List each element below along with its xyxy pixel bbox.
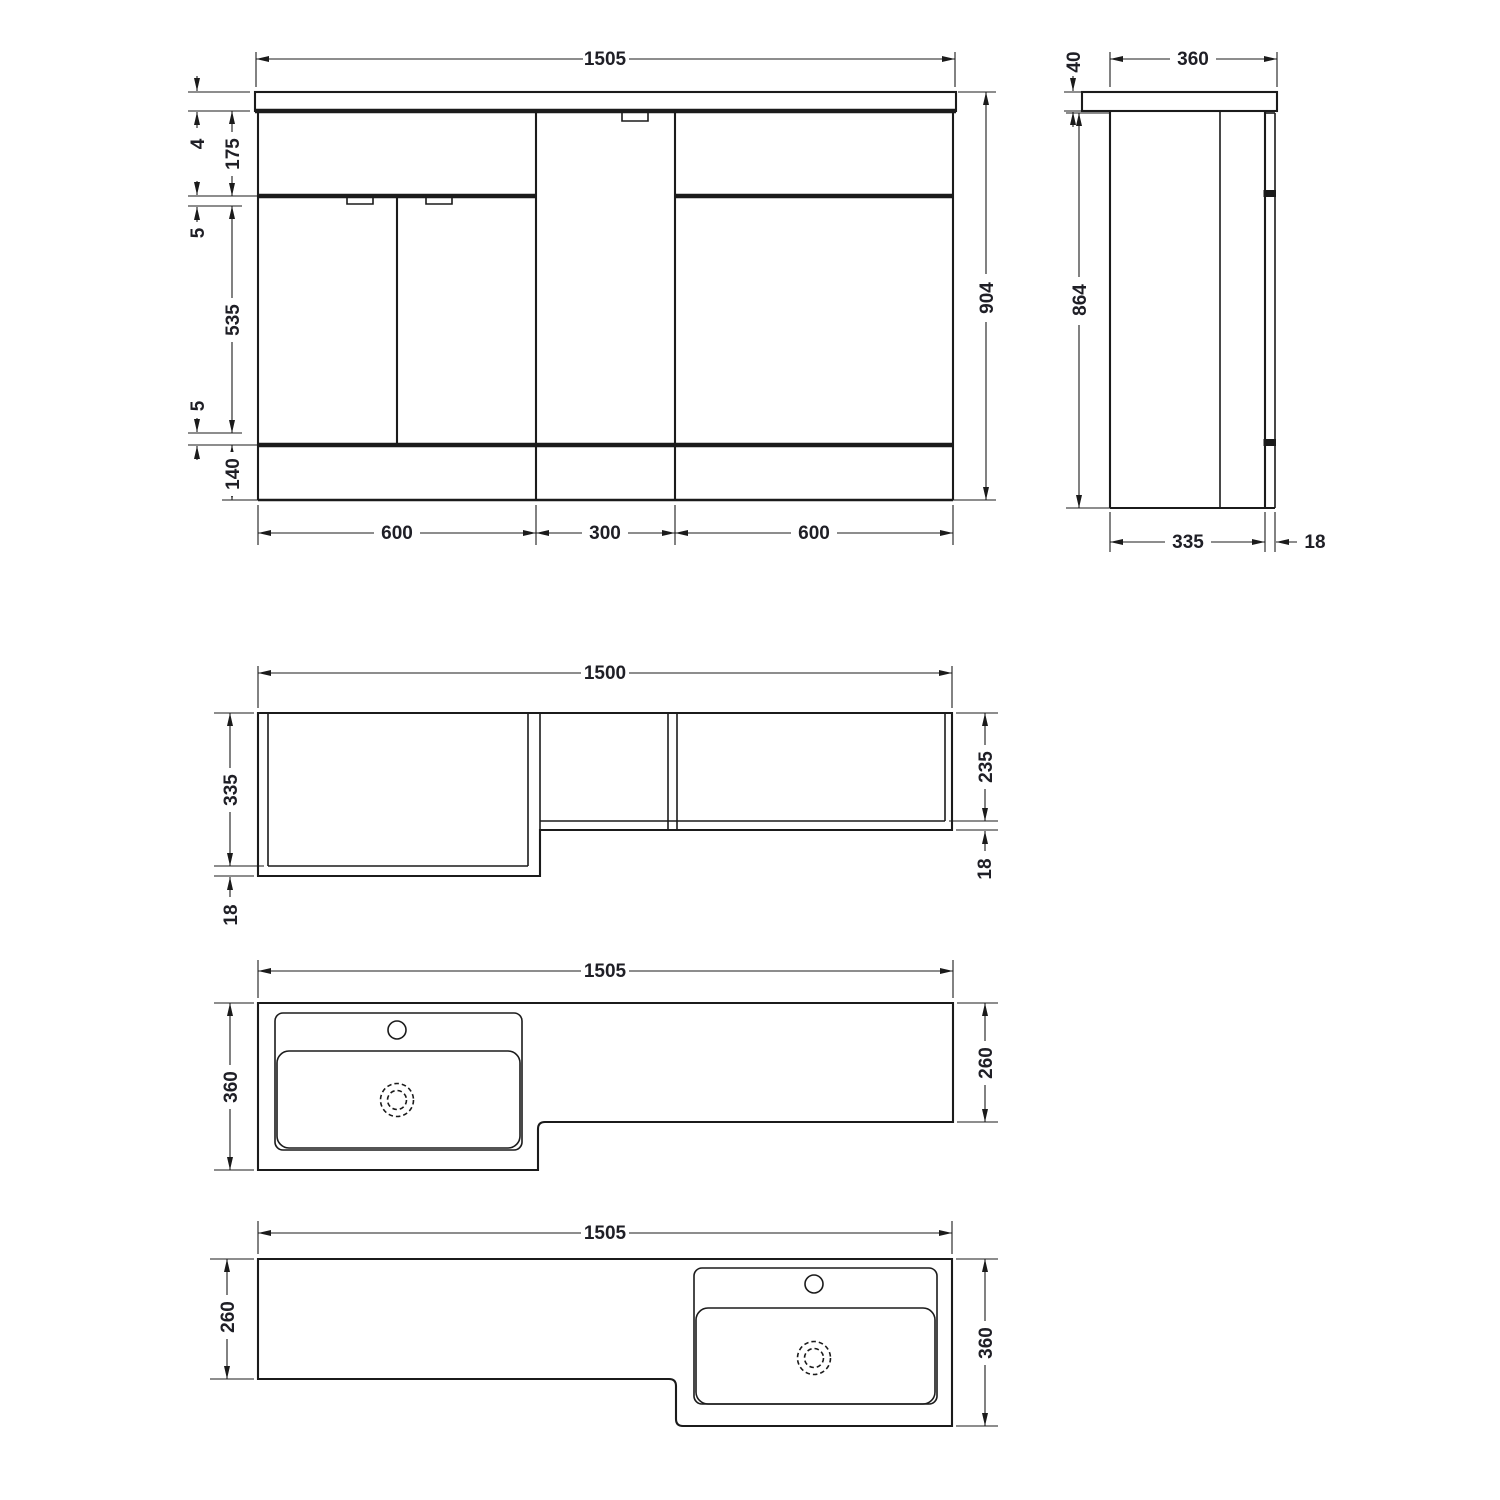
technical-drawing-page: 1505 904 4 175 5 535 5 140 600 300 600 xyxy=(0,0,1500,1500)
lh-basin-outer xyxy=(275,1013,522,1150)
plan-view: 1500 335 18 235 18 xyxy=(214,663,998,926)
countertop-lh-dimension-labels: 1505 360 260 xyxy=(221,961,997,1109)
plan-dimension-lines xyxy=(214,666,998,897)
lh-dim-basin-side-depth: 360 xyxy=(221,1071,242,1103)
rh-basin-outer xyxy=(694,1268,937,1404)
side-dim-counter-depth: 360 xyxy=(1177,49,1209,70)
lh-tap-hole xyxy=(388,1021,406,1039)
front-dim-overall-width: 1505 xyxy=(584,49,627,70)
rh-dim-basin-side-depth: 360 xyxy=(976,1327,997,1359)
countertop-lh-outer xyxy=(258,1003,953,1170)
rh-basin-bowl xyxy=(696,1308,935,1404)
countertop-lh-view: 1505 360 260 xyxy=(214,960,998,1170)
plan-dim-overall-width: 1500 xyxy=(584,663,626,684)
countertop-rh-dimension-lines xyxy=(210,1221,998,1426)
front-dim-upper-gap: 5 xyxy=(188,227,209,238)
front-elevation-dimension-lines xyxy=(188,52,996,545)
plan-dim-left-depth: 335 xyxy=(221,774,242,806)
rh-drain-inner xyxy=(805,1349,824,1368)
countertop-rh-outer xyxy=(258,1259,952,1426)
wc-panel-handle-notch xyxy=(622,113,648,121)
side-dim-counter-thickness: 40 xyxy=(1064,51,1085,72)
plan-dim-right-depth: 235 xyxy=(976,751,997,783)
side-dim-front-panel: 18 xyxy=(1304,532,1325,553)
lh-dim-slim-side-depth: 260 xyxy=(976,1047,997,1079)
plan-outline xyxy=(258,713,952,876)
lh-dim-overall-width: 1505 xyxy=(584,961,627,982)
countertop-rh-dimension-labels: 1505 260 360 xyxy=(218,1223,997,1365)
front-dim-mid-unit: 300 xyxy=(589,523,621,544)
front-dim-left-unit: 600 xyxy=(381,523,413,544)
front-elevation-dimension-labels: 1505 904 4 175 5 535 5 140 600 300 600 xyxy=(188,49,998,544)
plan-outer-outline xyxy=(258,713,952,876)
front-elevation-view: 1505 904 4 175 5 535 5 140 600 300 600 xyxy=(188,49,998,545)
countertop-rh-outline xyxy=(258,1259,952,1426)
side-panel-gap-mark-lower xyxy=(1264,439,1277,446)
plan-dim-right-front-panel: 18 xyxy=(975,858,996,879)
side-dim-carcass-depth: 335 xyxy=(1172,532,1204,553)
front-elevation-outline xyxy=(255,92,956,500)
lh-basin-bowl xyxy=(277,1051,520,1148)
side-dim-carcass-height: 864 xyxy=(1070,284,1091,316)
front-dim-upper-panel: 175 xyxy=(223,138,244,170)
plan-dimension-labels: 1500 335 18 235 18 xyxy=(221,663,997,926)
side-countertop xyxy=(1082,92,1277,111)
vanity-unit-technical-drawing: 1505 904 4 175 5 535 5 140 600 300 600 xyxy=(0,0,1500,1500)
countertop-lh-outline xyxy=(258,1003,953,1170)
side-panel-gap-mark-upper xyxy=(1264,190,1277,197)
front-dim-right-unit: 600 xyxy=(798,523,830,544)
side-elevation-outline xyxy=(1082,92,1277,508)
rh-drain-outer xyxy=(798,1342,831,1375)
front-dim-plinth-height: 140 xyxy=(223,458,244,490)
countertop-rh-view: 1505 260 360 xyxy=(210,1221,998,1426)
countertop-lh-dimension-lines xyxy=(214,960,998,1170)
plan-dim-left-front-panel: 18 xyxy=(221,904,242,925)
front-dim-lower-gap: 5 xyxy=(188,400,209,411)
front-dim-door-height: 535 xyxy=(223,304,244,336)
front-dim-overall-height: 904 xyxy=(977,282,998,314)
side-elevation-dimension-lines xyxy=(1064,52,1297,552)
side-elevation-dimension-labels: 360 40 864 335 18 xyxy=(1064,49,1326,553)
front-countertop xyxy=(255,92,956,111)
rh-dim-overall-width: 1505 xyxy=(584,1223,627,1244)
rh-dim-slim-side-depth: 260 xyxy=(218,1301,239,1333)
lh-drain-outer xyxy=(381,1084,414,1117)
front-dim-top-gap: 4 xyxy=(188,138,209,149)
rh-tap-hole xyxy=(805,1275,823,1293)
lh-drain-inner xyxy=(388,1091,407,1110)
side-elevation-view: 360 40 864 335 18 xyxy=(1064,49,1326,553)
